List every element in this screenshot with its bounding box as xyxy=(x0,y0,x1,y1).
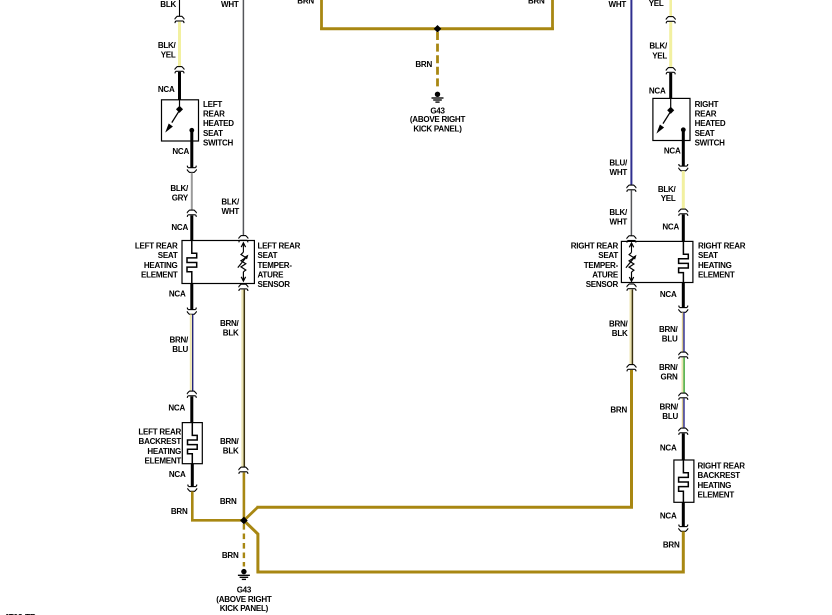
svg-text:RIGHT: RIGHT xyxy=(695,100,719,109)
svg-text:WHT: WHT xyxy=(222,207,240,216)
svg-text:BRN/: BRN/ xyxy=(169,335,189,344)
svg-text:LEFT REAR: LEFT REAR xyxy=(135,241,178,250)
svg-text:BRN/: BRN/ xyxy=(659,325,679,334)
svg-text:KICK PANEL): KICK PANEL) xyxy=(413,124,462,133)
svg-text:SEAT: SEAT xyxy=(598,251,618,260)
svg-text:RIGHT REAR: RIGHT REAR xyxy=(698,461,746,470)
svg-text:NCA: NCA xyxy=(660,443,677,452)
svg-text:BRN/: BRN/ xyxy=(659,402,679,411)
svg-text:BRN: BRN xyxy=(528,0,545,5)
svg-text:HEATING: HEATING xyxy=(698,261,732,270)
svg-text:BLK: BLK xyxy=(223,329,239,338)
svg-text:SEAT: SEAT xyxy=(203,129,223,138)
svg-text:BRN: BRN xyxy=(610,406,627,415)
svg-text:BLK: BLK xyxy=(223,447,239,456)
svg-text:NCA: NCA xyxy=(169,470,186,479)
svg-text:HEATING: HEATING xyxy=(698,481,732,490)
svg-text:SENSOR: SENSOR xyxy=(258,280,291,289)
svg-text:BRN: BRN xyxy=(220,497,237,506)
svg-text:YEL: YEL xyxy=(161,51,176,60)
svg-text:REAR: REAR xyxy=(203,110,225,119)
svg-text:HEATING: HEATING xyxy=(147,447,181,456)
svg-text:REAR: REAR xyxy=(695,110,717,119)
svg-text:YEL: YEL xyxy=(652,51,667,60)
svg-text:ELEMENT: ELEMENT xyxy=(698,491,735,500)
svg-text:NCA: NCA xyxy=(662,223,679,232)
svg-text:SEAT: SEAT xyxy=(158,251,178,260)
svg-text:BLK/: BLK/ xyxy=(609,208,628,217)
svg-text:NCA: NCA xyxy=(172,147,189,156)
svg-text:BACKREST: BACKREST xyxy=(698,471,741,480)
svg-text:BRN: BRN xyxy=(222,551,239,560)
svg-text:ATURE: ATURE xyxy=(592,271,619,280)
svg-text:BRN/: BRN/ xyxy=(220,437,240,446)
svg-text:SENSOR: SENSOR xyxy=(586,280,619,289)
svg-text:BRN: BRN xyxy=(171,507,188,516)
svg-text:WHT: WHT xyxy=(610,218,628,227)
svg-text:WHT: WHT xyxy=(610,168,628,177)
svg-text:BLK: BLK xyxy=(612,329,628,338)
svg-text:LEFT REAR: LEFT REAR xyxy=(138,427,181,436)
svg-text:SEAT: SEAT xyxy=(258,251,278,260)
svg-text:BRN/: BRN/ xyxy=(609,319,629,328)
svg-text:TEMPER-: TEMPER- xyxy=(584,261,619,270)
svg-text:BLU: BLU xyxy=(662,335,678,344)
svg-text:BACKREST: BACKREST xyxy=(139,437,182,446)
svg-text:ELEMENT: ELEMENT xyxy=(141,271,178,280)
svg-text:BRN/: BRN/ xyxy=(659,363,679,372)
svg-text:YEL: YEL xyxy=(661,194,676,203)
svg-text:BLK/: BLK/ xyxy=(658,185,677,194)
svg-text:SWITCH: SWITCH xyxy=(695,139,726,148)
svg-text:(ABOVE RIGHT: (ABOVE RIGHT xyxy=(216,595,272,604)
svg-text:SWITCH: SWITCH xyxy=(203,139,234,148)
svg-text:RIGHT REAR: RIGHT REAR xyxy=(571,241,619,250)
svg-text:NCA: NCA xyxy=(169,290,186,299)
svg-text:BRN: BRN xyxy=(297,0,314,5)
svg-text:NCA: NCA xyxy=(660,511,677,520)
svg-text:BRN/: BRN/ xyxy=(220,319,240,328)
svg-text:SEAT: SEAT xyxy=(695,129,715,138)
svg-text:RIGHT REAR: RIGHT REAR xyxy=(698,241,746,250)
svg-text:BLU: BLU xyxy=(662,412,678,421)
svg-text:GRN: GRN xyxy=(660,373,678,382)
svg-text:HEATING: HEATING xyxy=(144,261,178,270)
svg-text:ELEMENT: ELEMENT xyxy=(145,457,182,466)
svg-text:BLK/: BLK/ xyxy=(649,42,668,51)
svg-text:WHT: WHT xyxy=(609,0,627,9)
svg-text:BLK/: BLK/ xyxy=(221,198,240,207)
svg-text:BLK/: BLK/ xyxy=(158,41,177,50)
svg-text:NCA: NCA xyxy=(649,87,666,96)
svg-text:(ABOVE RIGHT: (ABOVE RIGHT xyxy=(410,115,466,124)
svg-text:LEFT: LEFT xyxy=(203,100,222,109)
svg-text:GRY: GRY xyxy=(172,194,189,203)
svg-text:NCA: NCA xyxy=(168,403,185,412)
svg-text:ELEMENT: ELEMENT xyxy=(698,271,735,280)
svg-text:NCA: NCA xyxy=(664,147,681,156)
svg-text:WHT: WHT xyxy=(221,0,239,9)
svg-text:NCA: NCA xyxy=(158,85,175,94)
svg-text:BRN: BRN xyxy=(663,541,680,550)
svg-text:LEFT REAR: LEFT REAR xyxy=(258,241,301,250)
svg-text:NCA: NCA xyxy=(171,223,188,232)
svg-text:BLK: BLK xyxy=(160,0,176,9)
svg-text:G43: G43 xyxy=(237,586,252,595)
svg-text:YEL: YEL xyxy=(649,0,664,8)
svg-text:SEAT: SEAT xyxy=(698,251,718,260)
svg-text:TEMPER-: TEMPER- xyxy=(258,261,293,270)
svg-text:HEATED: HEATED xyxy=(203,119,234,128)
svg-text:BLU: BLU xyxy=(172,345,188,354)
svg-text:BRN: BRN xyxy=(415,60,432,69)
svg-text:ATURE: ATURE xyxy=(258,271,285,280)
svg-text:NCA: NCA xyxy=(660,290,677,299)
svg-text:KICK PANEL): KICK PANEL) xyxy=(220,604,269,613)
svg-text:BLU/: BLU/ xyxy=(609,158,628,167)
svg-text:BLK/: BLK/ xyxy=(170,184,189,193)
svg-text:HEATED: HEATED xyxy=(695,119,726,128)
